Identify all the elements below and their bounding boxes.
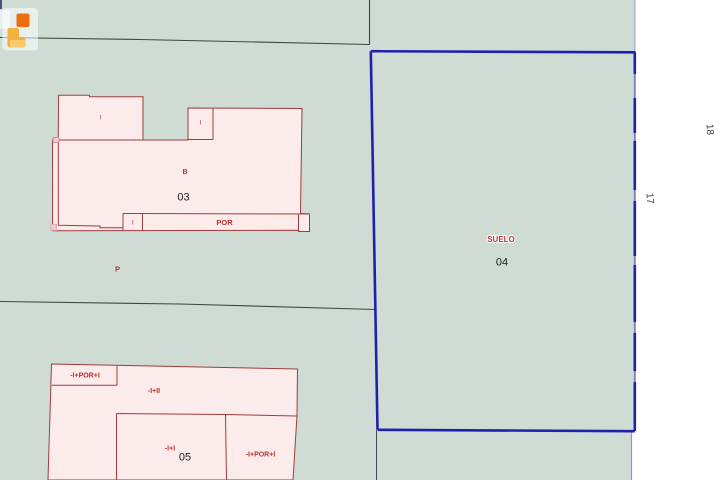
svg-text:-I+POR+I: -I+POR+I <box>70 373 100 380</box>
svg-text:I: I <box>100 115 102 122</box>
svg-text:B: B <box>182 169 187 176</box>
svg-text:17: 17 <box>643 193 655 205</box>
svg-text:03: 03 <box>177 192 189 204</box>
svg-text:-I+I: -I+I <box>165 445 175 452</box>
svg-text:-I+II: -I+II <box>148 388 160 395</box>
svg-text:-I+POR+I: -I+POR+I <box>246 451 276 458</box>
svg-text:18: 18 <box>703 124 715 136</box>
svg-text:04: 04 <box>496 257 508 269</box>
svg-text:P: P <box>115 265 120 274</box>
svg-text:I: I <box>200 120 202 127</box>
svg-text:I: I <box>132 220 134 227</box>
svg-text:SUELO: SUELO <box>487 235 515 244</box>
svg-text:05: 05 <box>179 452 191 464</box>
svg-text:POR: POR <box>216 218 233 227</box>
